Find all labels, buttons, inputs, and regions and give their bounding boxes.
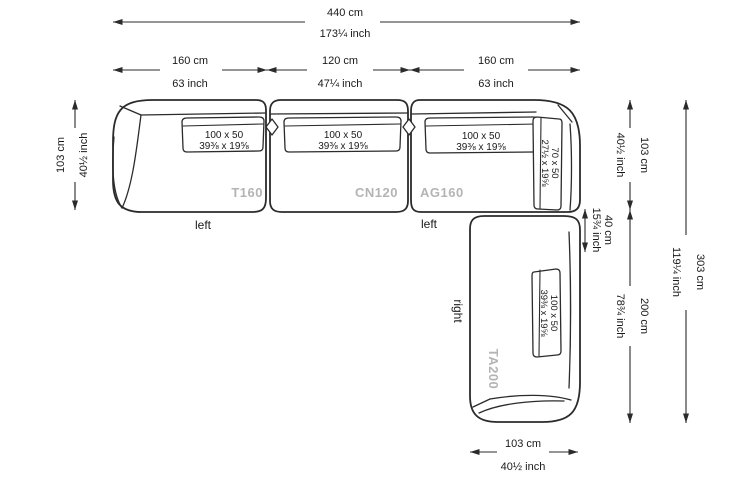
cushion-ta200: 100 x 50 39⅜ x 19⅝ [532,269,561,357]
dim-arm-offset-cm: 40 cm [602,215,614,245]
dim-bottom-width: 103 cm 40½ inch [470,438,578,473]
ag160-right-seam [570,124,572,210]
t160-arm-miter [120,106,141,115]
label-t160: T160 [231,185,263,200]
cushion-size-cm: 100 x 50 [205,130,244,141]
cushion-size-inch: 27½ x 19⅝ [539,139,550,186]
cushion-cn120: 100 x 50 39⅜ x 19⅝ [284,117,401,152]
dim-seg3-inch: 63 inch [478,78,513,90]
dim-seg1-inch: 63 inch [172,78,207,90]
dim-total-height-inch: 119¼ inch [670,247,682,297]
dim-seg2-cm: 120 cm [322,55,358,67]
dim-right-depth-cm: 103 cm [638,137,650,173]
dim-seg3: 160 cm 63 inch [410,55,580,90]
junction-fold-2 [403,119,415,135]
dim-bottom-width-inch: 40½ inch [501,461,546,473]
cushion-size-inch: 39⅜ x 19⅝ [538,289,549,336]
cushion-size-cm: 100 x 50 [324,130,363,141]
orientation-left-2: left [421,217,438,231]
cushion-corner-70: 70 x 50 27½ x 19⅝ [533,117,562,210]
dim-seg2: 120 cm 47¼ inch [267,55,410,90]
piece-ta200 [470,216,580,422]
label-ta200: TA200 [486,349,501,390]
label-cn120: CN120 [355,185,398,200]
t160-arm-roll [113,137,122,208]
dimension-lines: 440 cm 173¼ inch 160 cm 63 inch 120 cm 4… [55,7,706,473]
dim-total-width-inch: 173¼ inch [320,28,371,40]
ag160-back-seam [412,112,536,114]
cushion-size-inch: 39⅜ x 19⅝ [318,141,368,152]
dim-right-depth: 103 cm 40½ inch [614,100,650,210]
cushion-ag160: 100 x 50 39⅜ x 19⅝ [425,117,538,153]
t160-arm-edge [122,115,141,208]
dim-left-depth-inch: 40½ inch [78,133,90,178]
ta200-back-seam [569,232,571,388]
dim-left-depth: 103 cm 40½ inch [55,100,90,210]
ta200-arm-seam [490,395,571,400]
dim-bottom-width-cm: 103 cm [505,438,541,450]
cushion-size-inch: 39⅜ x 19⅝ [456,142,506,153]
diagram-svg: 100 x 50 39⅜ x 19⅝ 100 x 50 39⅜ x 19⅝ 10… [0,0,737,502]
sofa-dimension-diagram: 100 x 50 39⅜ x 19⅝ 100 x 50 39⅜ x 19⅝ 10… [0,0,737,502]
piece-labels: T160 CN120 AG160 TA200 left left right [195,185,501,389]
ta200-arm-miter [473,399,490,407]
junction-fold-1 [266,119,278,135]
dim-total-width: 440 cm 173¼ inch [113,7,580,40]
dim-arm-offset-inch: 15¾ inch [590,208,602,253]
t160-back-seam [141,113,265,115]
orientation-right: right [451,299,465,323]
dim-left-depth-cm: 103 cm [55,137,67,173]
back-cushions: 100 x 50 39⅜ x 19⅝ 100 x 50 39⅜ x 19⅝ 10… [182,117,562,357]
cushion-size-inch: 39⅜ x 19⅝ [199,141,249,152]
dim-seg1-cm: 160 cm [172,55,208,67]
dim-right-length-inch: 78¾ inch [614,294,626,339]
dim-total-height: 303 cm 119¼ inch [670,100,706,423]
dim-right-depth-inch: 40½ inch [614,133,626,178]
dim-total-width-cm: 440 cm [327,7,363,19]
dim-right-length: 200 cm 78¾ inch [614,210,650,423]
dim-seg2-inch: 47¼ inch [318,78,363,90]
ta200-arm-roll [479,401,564,413]
dim-total-height-cm: 303 cm [694,254,706,290]
cushion-t160: 100 x 50 39⅜ x 19⅝ [182,117,264,152]
label-ag160: AG160 [420,185,464,200]
dim-seg1: 160 cm 63 inch [113,55,267,90]
cushion-size-cm: 100 x 50 [462,131,501,142]
cn120-back-seam [271,113,407,114]
orientation-left-1: left [195,218,212,232]
dim-right-length-cm: 200 cm [638,298,650,334]
dim-arm-offset: 40 cm 15¾ inch [585,208,614,253]
dim-seg3-cm: 160 cm [478,55,514,67]
